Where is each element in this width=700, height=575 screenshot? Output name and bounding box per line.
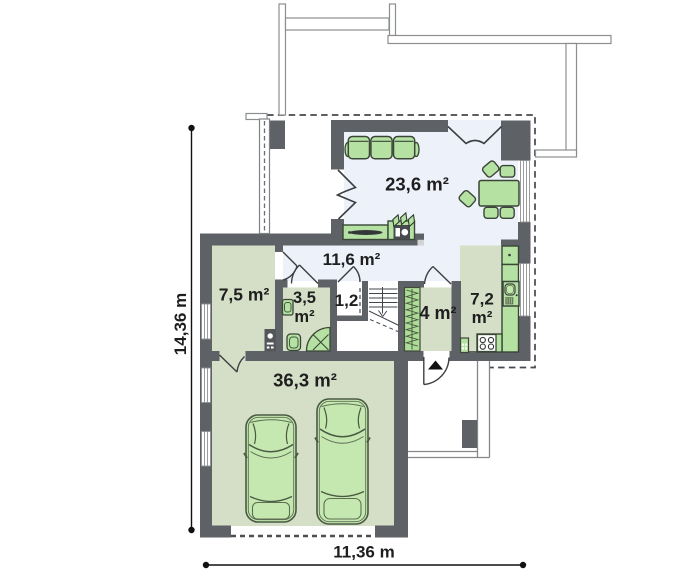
svg-text:3,5: 3,5	[293, 289, 316, 307]
svg-text:m²: m²	[294, 308, 315, 326]
svg-text:23,6 m²: 23,6 m²	[385, 174, 449, 195]
svg-text:m²: m²	[472, 308, 493, 327]
svg-text:7,2: 7,2	[470, 290, 494, 309]
svg-text:14,36 m: 14,36 m	[171, 293, 190, 355]
svg-text:11,36 m: 11,36 m	[333, 543, 394, 562]
svg-text:4 m²: 4 m²	[419, 303, 456, 323]
svg-text:1,2: 1,2	[335, 291, 359, 310]
svg-text:7,5 m²: 7,5 m²	[219, 285, 270, 305]
svg-text:11,6 m²: 11,6 m²	[323, 250, 381, 269]
svg-text:36,3 m²: 36,3 m²	[273, 370, 337, 391]
